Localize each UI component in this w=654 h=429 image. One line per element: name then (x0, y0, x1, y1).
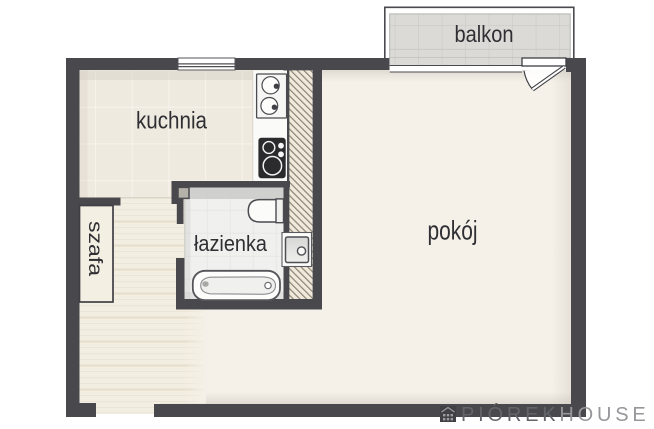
svg-text:PIÓREKHOUSE: PIÓREKHOUSE (461, 403, 650, 426)
svg-text:balkon: balkon (455, 21, 514, 47)
svg-text:szafa: szafa (84, 221, 105, 277)
svg-text:kuchnia: kuchnia (136, 108, 208, 135)
svg-text:pokój: pokój (428, 216, 478, 246)
svg-text:łazienka: łazienka (194, 231, 268, 256)
